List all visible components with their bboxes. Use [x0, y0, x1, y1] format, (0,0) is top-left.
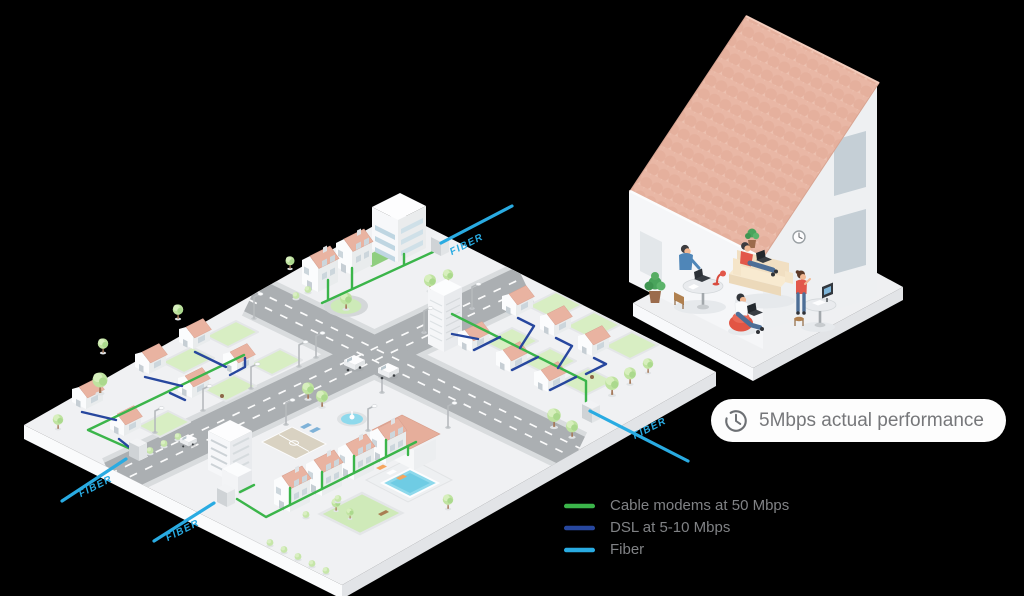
legend-item-dsl: DSL at 5-10 Mbps	[563, 520, 789, 535]
tree-icon	[173, 304, 184, 320]
wall-clock-icon	[793, 231, 805, 243]
performance-badge: 5Mbps actual performance	[711, 399, 1006, 442]
legend-swatch-cable	[563, 502, 597, 510]
legend-label: Fiber	[610, 541, 644, 558]
office-building-north	[372, 193, 426, 262]
network-legend: Cable modems at 50 Mbps DSL at 5-10 Mbps…	[563, 498, 789, 557]
tree-icon	[98, 338, 109, 354]
tree-icon	[286, 256, 295, 270]
isometric-scene: FIBER FIBER FIBER FIBER	[0, 0, 1024, 596]
infographic-canvas: FIBER FIBER FIBER FIBER	[0, 0, 1024, 596]
legend-label: Cable modems at 50 Mbps	[610, 497, 789, 514]
gable-window	[834, 209, 866, 274]
legend-swatch-dsl	[563, 524, 597, 532]
legend-label: DSL at 5-10 Mbps	[610, 519, 730, 536]
legend-item-fiber: Fiber	[563, 542, 789, 557]
clock-icon	[723, 408, 749, 434]
house-cutaway-scene	[629, 16, 903, 381]
legend-swatch-fiber	[563, 546, 597, 554]
dog-icon	[220, 394, 224, 398]
legend-item-cable: Cable modems at 50 Mbps	[563, 498, 789, 513]
badge-label: 5Mbps actual performance	[759, 410, 984, 432]
dog-icon	[590, 375, 594, 379]
